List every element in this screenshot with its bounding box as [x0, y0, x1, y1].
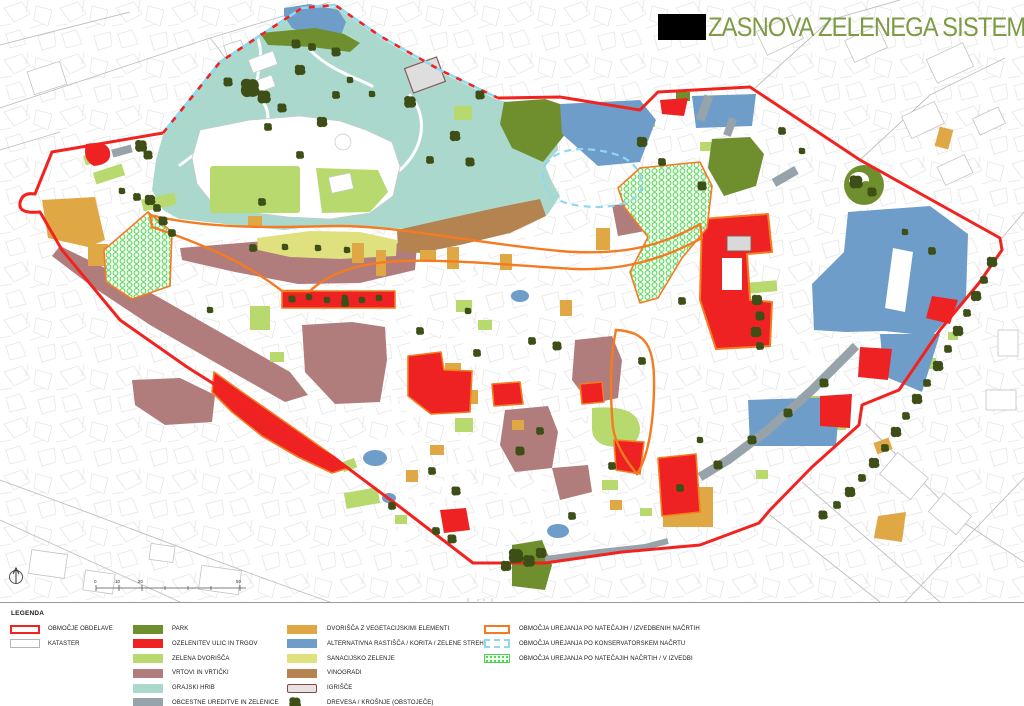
legend-label: DREVESA / KROŠNJE (OBSTOJEČE)	[327, 700, 433, 706]
legend-label: VRTOVI IN VRTIČKI	[172, 670, 229, 676]
legend-label: SANACIJSKO ZELENJE	[327, 656, 395, 662]
redaction-box	[658, 14, 706, 40]
legend-item: OBCESTNE UREDITVE IN ZELENICE	[133, 698, 279, 706]
legend-item: VRTOVI IN VRTIČKI	[133, 668, 279, 678]
legend-label: OZELENITEV ULIC IN TRGOV	[172, 641, 258, 647]
alternative-growing-swatch	[287, 639, 317, 648]
legend-label: PARK	[172, 626, 188, 632]
legend-item: OBMOČJA UREJANJA PO KONSERVATORSKEM NAČR…	[484, 639, 700, 649]
legend-label: OBMOČJA UREJANJA PO NATEČAJIH NAČRTIH / …	[519, 656, 693, 662]
legend-label: ZELENA DVORIŠČA	[172, 656, 230, 662]
cadastre-swatch	[10, 639, 40, 648]
title-block: ZASNOVA ZELENEGA SISTEMA	[658, 14, 1024, 40]
legend-panel: LEGENDA OBMOČJE OBDELAVE KATASTER PARK O…	[0, 602, 1024, 706]
tan-courtyards-swatch	[287, 625, 317, 634]
competition-areas-swatch	[484, 625, 510, 634]
tree-icon	[287, 696, 303, 706]
legend-label: OBMOČJA UREJANJA PO NATEČAJIH / IZVEDBEN…	[519, 626, 700, 632]
legend-item: SANACIJSKO ZELENJE	[287, 654, 488, 664]
legend-label: IGRIŠČE	[327, 685, 352, 691]
legend-col-planning: OBMOČJA UREJANJA PO NATEČAJIH / IZVEDBEN…	[484, 624, 700, 668]
legend-item: PARK	[133, 624, 279, 634]
map-canvas: 0 10 20 50	[0, 0, 1024, 602]
legend-item: OBMOČJA UREJANJA PO NATEČAJIH / IZVEDBEN…	[484, 624, 700, 634]
legend-item: ALTERNATIVNA RASTIŠČA / KORITA / ZELENE …	[287, 639, 488, 649]
page-title: ZASNOVA ZELENEGA SISTEMA	[708, 14, 1024, 40]
roadside-swatch	[133, 698, 163, 706]
legend-col-secondary: DVORIŠČA Z VEGETACIJSKIMI ELEMENTI ALTER…	[287, 624, 488, 706]
legend-item: DVORIŠČA Z VEGETACIJSKIMI ELEMENTI	[287, 624, 488, 634]
tree-swatch	[287, 698, 317, 706]
legend-item: ZELENA DVORIŠČA	[133, 654, 279, 664]
legend-item: OZELENITEV ULIC IN TRGOV	[133, 639, 279, 649]
green-courtyards-swatch	[133, 654, 163, 663]
legend-item: GRAJSKI HRIB	[133, 683, 279, 693]
castle-hill-swatch	[133, 684, 163, 693]
conservation-areas-swatch	[484, 639, 510, 648]
scale-tick-50: 50	[236, 579, 242, 584]
legend-label: KATASTER	[48, 641, 80, 647]
legend-heading: LEGENDA	[11, 610, 44, 617]
vineyards-swatch	[287, 669, 317, 678]
playground-swatch	[287, 684, 317, 693]
legend-item: VINOGRADI	[287, 668, 488, 678]
legend-label: OBMOČJE OBDELAVE	[48, 626, 113, 632]
legend-label: GRAJSKI HRIB	[172, 685, 215, 691]
legend-col-main: PARK OZELENITEV ULIC IN TRGOV ZELENA DVO…	[133, 624, 279, 706]
legend-label: DVORIŠČA Z VEGETACIJSKIMI ELEMENTI	[327, 626, 449, 632]
legend-col-boundaries: OBMOČJE OBDELAVE KATASTER	[10, 624, 113, 654]
legend-item: OBMOČJE OBDELAVE	[10, 624, 113, 634]
execution-areas-swatch	[484, 654, 510, 663]
legend-item: IGRIŠČE	[287, 683, 488, 693]
legend-item: KATASTER	[10, 639, 113, 649]
legend-item: OBMOČJA UREJANJA PO NATEČAJIH NAČRTIH / …	[484, 654, 700, 664]
study-area-swatch	[10, 625, 40, 634]
scale-tick-10: 10	[115, 579, 121, 584]
gardens-swatch	[133, 669, 163, 678]
scale-tick-20: 20	[138, 579, 144, 584]
legend-label: OBCESTNE UREDITVE IN ZELENICE	[172, 700, 279, 706]
legend-item: DREVESA / KROŠNJE (OBSTOJEČE)	[287, 698, 488, 706]
legend-label: ALTERNATIVNA RASTIŠČA / KORITA / ZELENE …	[327, 641, 488, 647]
park-swatch	[133, 625, 163, 634]
legend-label: OBMOČJA UREJANJA PO KONSERVATORSKEM NAČR…	[519, 641, 685, 647]
remediation-swatch	[287, 654, 317, 663]
legend-label: VINOGRADI	[327, 670, 362, 676]
street-greening-swatch	[133, 639, 163, 648]
plan-sheet: 0 10 20 50 ZASNOVA ZELENEGA SISTEMA LEGE…	[0, 0, 1024, 706]
